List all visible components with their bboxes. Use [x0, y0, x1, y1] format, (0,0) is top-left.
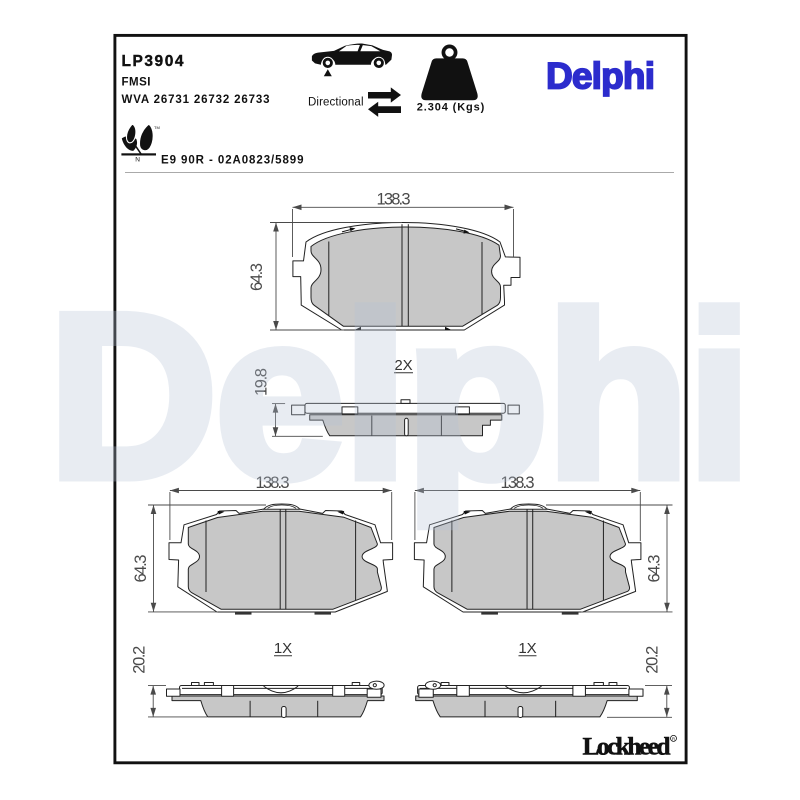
svg-text:1X: 1X — [274, 640, 292, 657]
svg-text:LP3904: LP3904 — [122, 53, 184, 70]
svg-text:20.2: 20.2 — [644, 646, 662, 674]
svg-text:N: N — [135, 156, 140, 163]
svg-text:Directional: Directional — [308, 97, 364, 109]
svg-text:Lockheed: Lockheed — [583, 732, 671, 761]
svg-text:WVA 26731 26732 26733: WVA 26731 26732 26733 — [122, 94, 270, 106]
svg-text:TM: TM — [154, 125, 160, 130]
svg-text:20.2: 20.2 — [131, 646, 149, 674]
svg-text:64.3: 64.3 — [132, 555, 150, 583]
svg-text:E9 90R - 02A0823/5899: E9 90R - 02A0823/5899 — [161, 155, 304, 167]
svg-text:Delphi: Delphi — [48, 264, 752, 527]
svg-text:Delphi: Delphi — [546, 56, 655, 97]
svg-text:138.3: 138.3 — [377, 191, 411, 209]
svg-text:1X: 1X — [518, 640, 536, 657]
svg-text:FMSI: FMSI — [122, 77, 151, 89]
svg-text:64.3: 64.3 — [646, 555, 664, 583]
svg-text:2.304 (Kgs): 2.304 (Kgs) — [417, 102, 485, 114]
